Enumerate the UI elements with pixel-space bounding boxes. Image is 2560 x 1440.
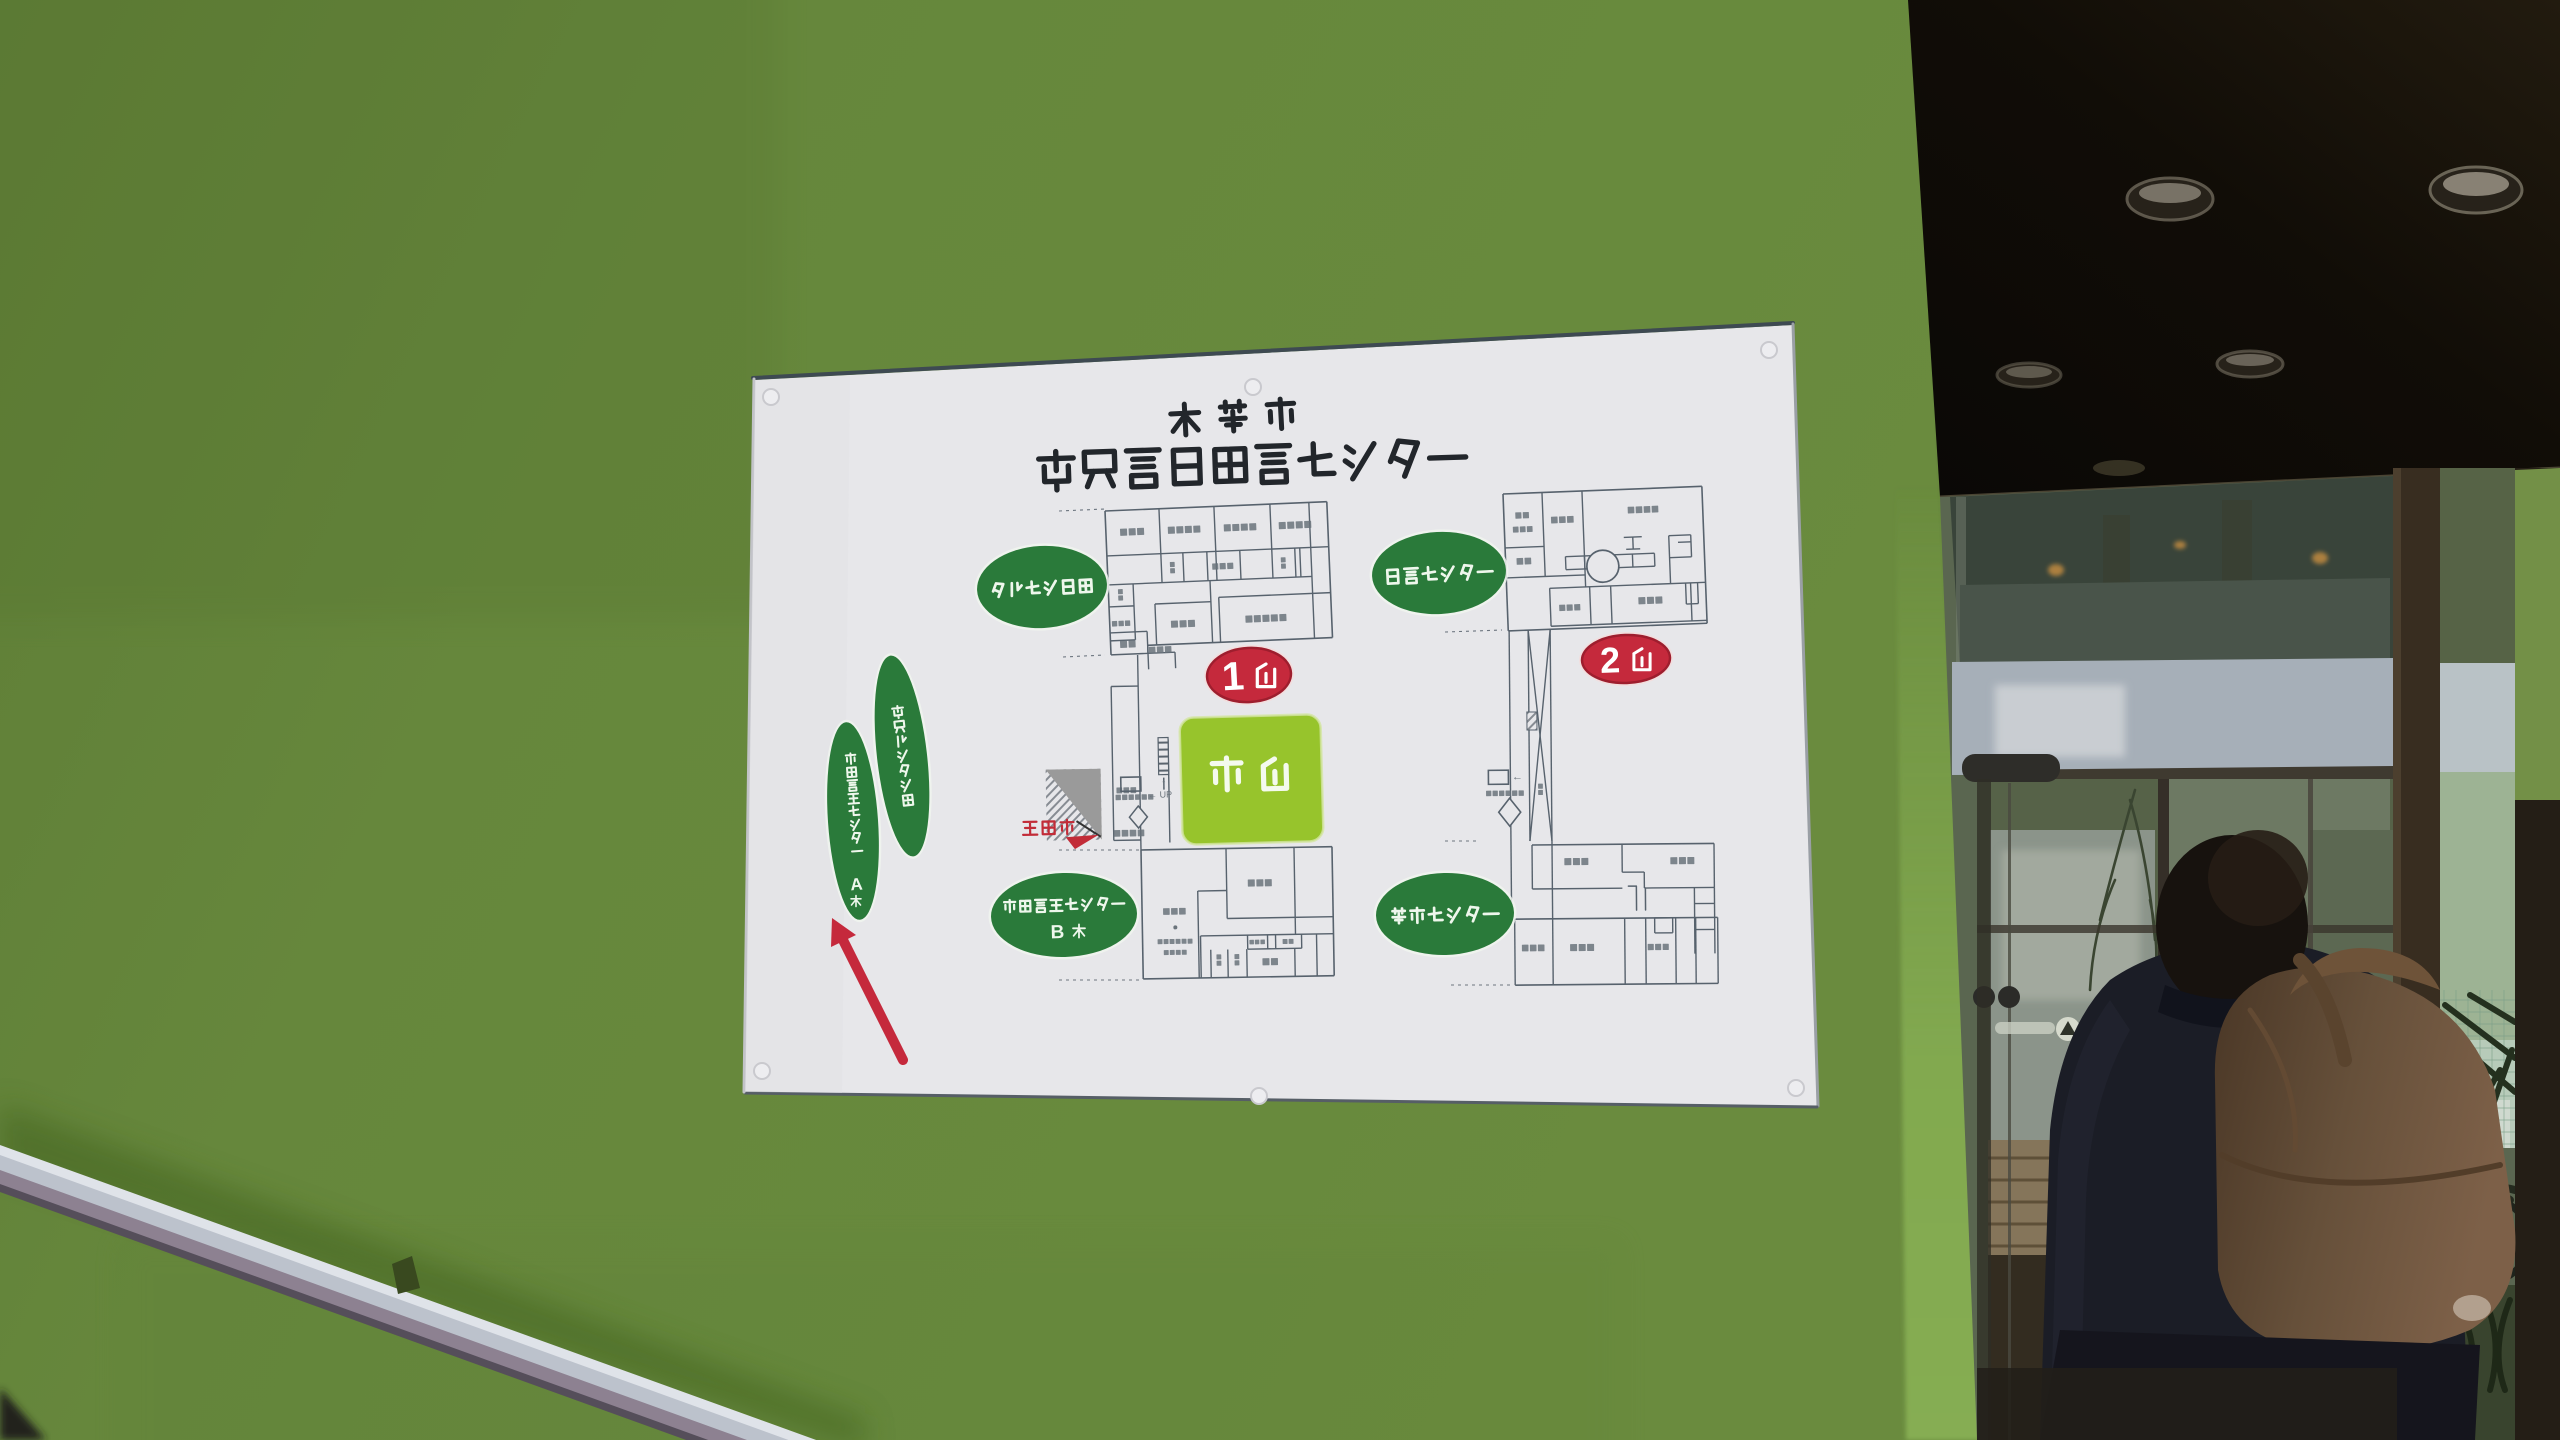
svg-text:A: A <box>850 875 864 895</box>
svg-text:2: 2 <box>1599 639 1620 681</box>
svg-text:←: ← <box>1512 771 1523 783</box>
svg-text:↑: ↑ <box>1161 778 1167 790</box>
svg-text:B: B <box>1050 922 1064 943</box>
svg-text:1: 1 <box>1221 654 1246 699</box>
